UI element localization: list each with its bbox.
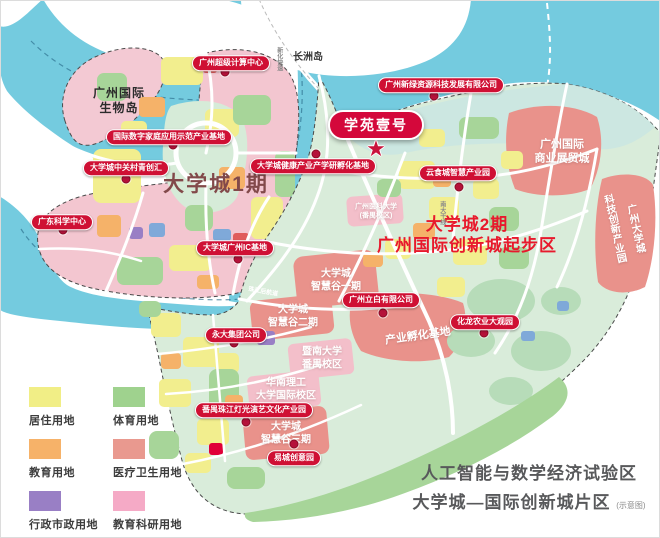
legend-label: 医疗卫生用地 [113, 464, 182, 480]
legend-item: 行政市政用地 [29, 491, 109, 532]
legend-label: 教育用地 [29, 464, 109, 480]
legend-label: 居住用地 [29, 412, 109, 428]
legend-label: 行政市政用地 [29, 516, 109, 532]
legend-item: 教育科研用地 [113, 491, 182, 532]
caption-line2: 大学城—国际创新城片区 (示意图) [409, 488, 649, 513]
legend-item: 教育用地 [29, 439, 109, 480]
legend-item: 医疗卫生用地 [113, 439, 182, 480]
legend-swatch [29, 439, 61, 459]
legend-label: 教育科研用地 [113, 516, 182, 532]
caption: 人工智能与数学经济试验区 大学城—国际创新城片区 (示意图) [409, 459, 649, 513]
legend-item: 体育用地 [113, 387, 182, 428]
caption-note: (示意图) [616, 501, 645, 510]
legend: 居住用地体育用地教育用地医疗卫生用地行政市政用地教育科研用地商业金融用地文化娱乐… [29, 387, 182, 538]
legend-item: 居住用地 [29, 387, 109, 428]
legend-swatch [113, 387, 145, 407]
legend-swatch [29, 491, 61, 511]
legend-swatch [29, 387, 61, 407]
caption-line1: 人工智能与数学经济试验区 [409, 459, 649, 484]
map-stage: 学苑壹号 ★ 长洲岛广州国际生物岛大学城1期大学城2期广州国际创新城起步区广州国… [0, 0, 660, 538]
legend-swatch [113, 491, 145, 511]
legend-swatch [113, 439, 145, 459]
legend-label: 体育用地 [113, 412, 182, 428]
